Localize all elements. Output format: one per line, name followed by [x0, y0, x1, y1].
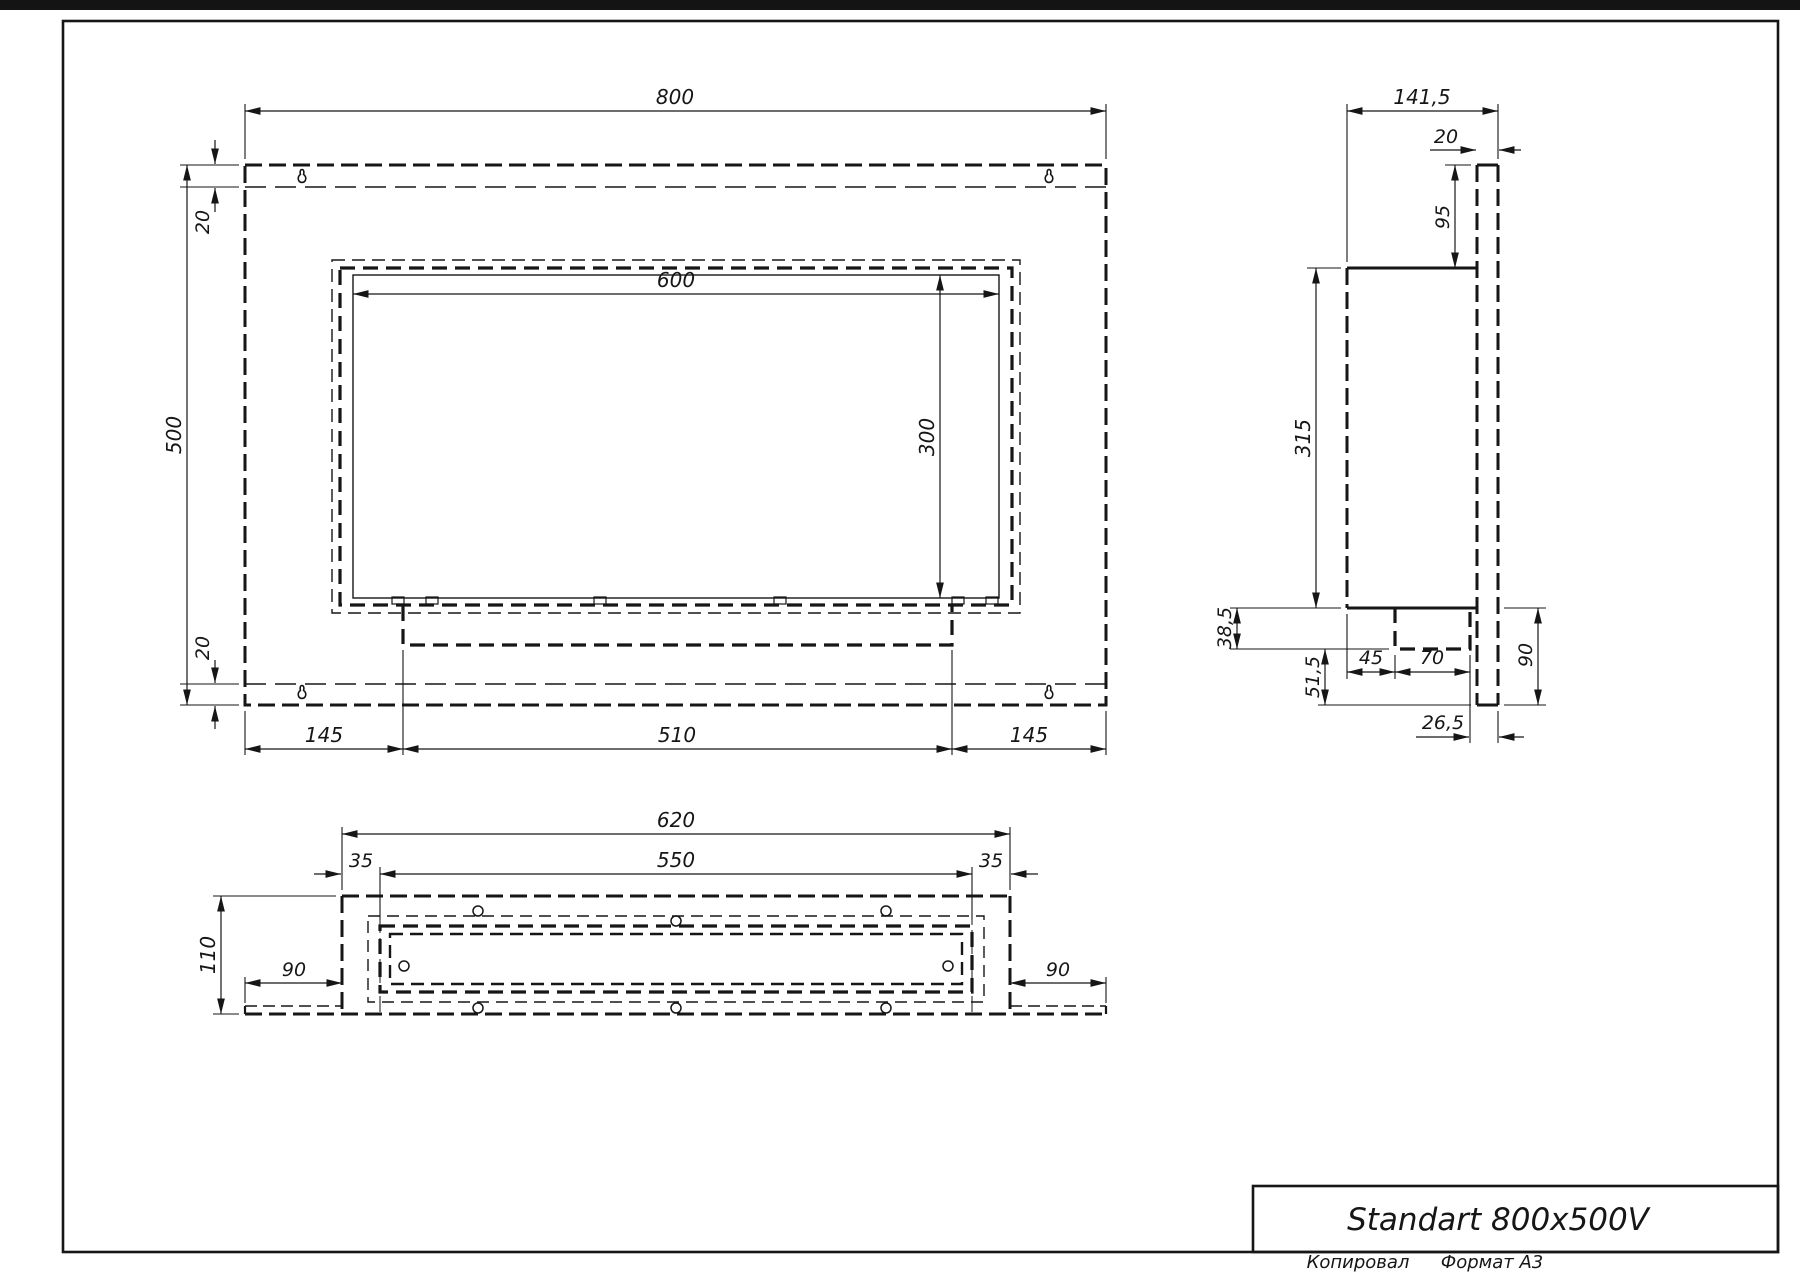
drawing-sheet: 800 500 20 20 600 300 145 510 145 [0, 0, 1800, 1273]
dim-right-flange: 90 [1046, 959, 1070, 981]
opening-centerlines [380, 880, 972, 1016]
dim-body-to-tray: 45 [1359, 647, 1383, 669]
dim-right-inset: 35 [979, 850, 1003, 872]
dim-depth: 110 [196, 936, 220, 974]
dim-window-width: 600 [657, 268, 695, 292]
dim-tray-drop: 38,5 [1214, 607, 1236, 649]
front-panel-outline [245, 165, 1106, 705]
wall-plate [1477, 165, 1498, 705]
title-block: Standart 800x500V [1253, 1186, 1778, 1252]
dim-left-flange: 90 [282, 959, 306, 981]
sheet-frame [63, 21, 1778, 1252]
dim-front-top-offset: 20 [192, 210, 214, 234]
opening-outer-dashed [368, 916, 984, 1002]
sheet-footer: Копировал Формат A3 [1307, 1252, 1544, 1273]
dim-left-margin: 145 [305, 723, 343, 747]
keyhole-icon [298, 170, 306, 183]
dim-bottom-offset: 26,5 [1422, 712, 1464, 734]
scan-edge-strip [0, 0, 1800, 10]
dim-front-bottom-offset: 20 [192, 636, 214, 660]
front-panel-fold-lines [245, 187, 1106, 684]
dim-window-height: 300 [915, 418, 939, 456]
dim-side-depth: 141,5 [1393, 85, 1450, 109]
window-opening [353, 275, 999, 598]
bottom-view: 620 550 35 35 110 90 90 [196, 808, 1106, 1016]
dim-left-inset: 35 [349, 850, 373, 872]
window-hidden-outline [340, 268, 1012, 605]
front-extension-lines [180, 104, 1106, 755]
keyhole-icon [1045, 170, 1053, 183]
dim-tray-depth: 70 [1420, 647, 1444, 669]
drawing-title: Standart 800x500V [1347, 1202, 1652, 1238]
dim-plate-extension: 90 [1515, 643, 1537, 667]
dim-box-width: 620 [657, 808, 695, 832]
footer-copied-label: Копировал [1307, 1252, 1410, 1273]
footer-format-label: Формат A3 [1441, 1252, 1544, 1273]
firebox-body-side [1347, 268, 1477, 608]
fuel-tray-front [403, 606, 952, 645]
front-view: 800 500 20 20 600 300 145 510 145 [162, 85, 1106, 755]
side-view: 141,5 20 95 315 38,5 51,5 45 70 26,5 90 [1214, 85, 1546, 743]
keyhole-icon [298, 686, 306, 699]
dim-front-width: 800 [656, 85, 694, 109]
dim-body-height: 315 [1291, 419, 1315, 457]
dim-top-to-body: 95 [1432, 205, 1454, 229]
opening-inner-dashed [390, 934, 962, 984]
keyhole-icon [1045, 686, 1053, 699]
dim-opening-width: 550 [657, 848, 695, 872]
side-dimension-lines [1237, 111, 1538, 737]
box-outline-bottom [342, 896, 1010, 1014]
dim-plate-thickness: 20 [1434, 126, 1458, 148]
technical-drawing: 800 500 20 20 600 300 145 510 145 [0, 0, 1800, 1273]
dim-tray-width: 510 [658, 723, 696, 747]
mounting-holes [399, 906, 953, 1013]
front-dimension-lines [187, 111, 1106, 749]
dim-right-margin: 145 [1010, 723, 1048, 747]
opening-hidden-outline [380, 926, 972, 992]
fuel-tray-side [1395, 608, 1470, 649]
dim-plate-below: 51,5 [1302, 656, 1324, 698]
dim-front-height: 500 [162, 416, 186, 454]
